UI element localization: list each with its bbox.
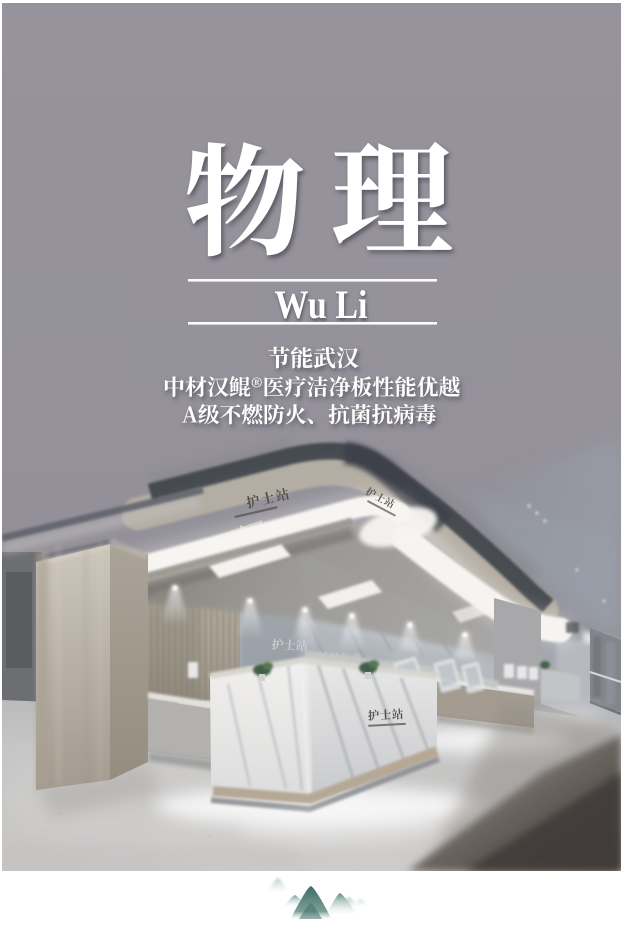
svg-text:Wu Li: Wu Li bbox=[275, 283, 368, 327]
